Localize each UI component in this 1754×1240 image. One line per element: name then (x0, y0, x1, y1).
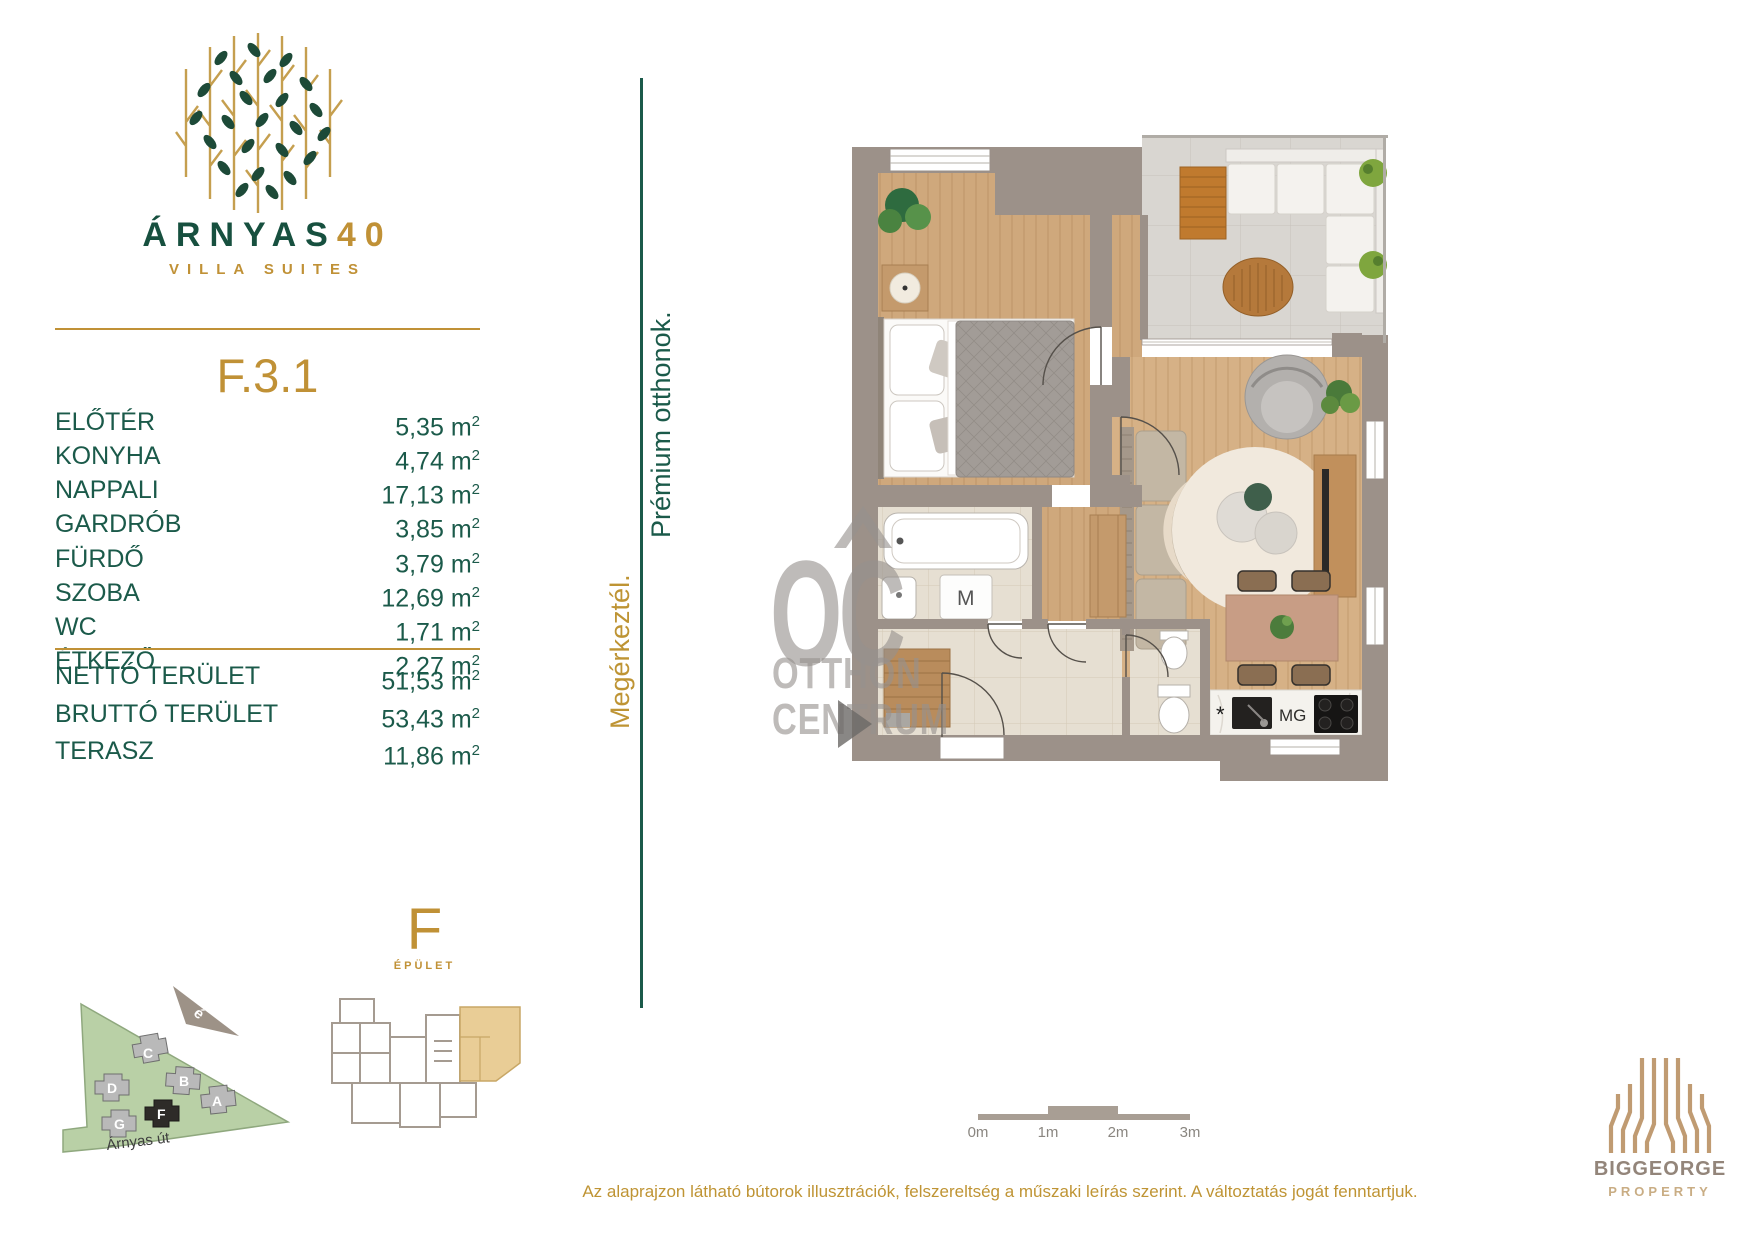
total-label: TERASZ (55, 735, 154, 773)
corridor-floor (1112, 215, 1142, 357)
unit-id: F.3.1 (55, 348, 480, 403)
building-label: C (143, 1045, 153, 1061)
area-unit-exp: 2 (472, 413, 480, 430)
area-unit: m (451, 516, 472, 544)
room-area-value: 5,35 (395, 413, 444, 441)
room-area-value: 3,79 (395, 550, 444, 578)
area-unit: m (451, 743, 472, 771)
total-label: NETTÓ TERÜLET (55, 660, 260, 698)
room-label: WC (55, 613, 97, 647)
area-unit-exp: 2 (472, 705, 480, 722)
footer-disclaimer: Az alaprajzon látható bútorok illusztrác… (500, 1182, 1500, 1202)
room-label: GARDRÓB (55, 510, 181, 544)
scale-bar (978, 1104, 1190, 1120)
area-unit-exp: 2 (472, 550, 480, 567)
table-row: SZOBA12,69 m2 (55, 579, 480, 613)
biggeorge-logo-icon (1590, 1046, 1730, 1158)
kitchen-oven-label: MG (1279, 706, 1306, 725)
bathtub (884, 513, 1028, 569)
table-row: NETTÓ TERÜLET51,53 m2 (55, 660, 480, 698)
scale-label: 3m (1175, 1124, 1205, 1141)
tree-logo-icon (158, 26, 358, 226)
room-area-value: 17,13 (381, 482, 444, 510)
building-label: A (212, 1093, 222, 1109)
room-label: SZOBA (55, 579, 140, 613)
divider-top (55, 328, 480, 330)
scale-labels: 0m 1m 2m 3m (978, 1124, 1190, 1144)
bed (878, 317, 1074, 479)
total-area-value: 53,43 (381, 705, 444, 733)
total-area: 53,43 m2 (381, 698, 480, 736)
site-plan: é C D B A G F Árnyas út (45, 982, 315, 1177)
area-unit-exp: 2 (472, 515, 480, 532)
area-unit-exp: 2 (472, 742, 480, 759)
brand-name-number: 40 (337, 216, 393, 254)
total-area-value: 11,86 (383, 743, 444, 771)
building-label: F (157, 1106, 166, 1122)
brochure-page: ÁRNYAS40 VILLA SUITES F.3.1 ELŐTÉR5,35 m… (0, 0, 1754, 1240)
table-row: ELŐTÉR5,35 m2 (55, 408, 480, 442)
room-area: 12,69 m2 (381, 579, 480, 613)
area-unit-exp: 2 (472, 481, 480, 498)
room-area-value: 3,85 (395, 516, 444, 544)
room-area: 17,13 m2 (381, 476, 480, 510)
washing-machine-label: M (957, 587, 975, 610)
building-label: G (114, 1116, 125, 1132)
room-label: FÜRDŐ (55, 545, 144, 579)
room-label: NAPPALI (55, 476, 159, 510)
area-unit: m (451, 584, 472, 612)
slogan-premium: Prémium otthonok. (646, 268, 677, 538)
nightstand (882, 265, 928, 311)
kitchen-hob (1314, 695, 1358, 733)
outdoor-round-table (1223, 258, 1293, 316)
area-unit-exp: 2 (472, 618, 480, 635)
total-area: 11,86 m2 (383, 735, 480, 773)
room-area-value: 12,69 (381, 584, 444, 612)
table-row: WC1,71 m2 (55, 613, 480, 647)
room-area: 3,85 m2 (395, 510, 480, 544)
divider-totals (55, 648, 480, 650)
table-row: FÜRDŐ3,79 m2 (55, 545, 480, 579)
outdoor-side-table (1180, 167, 1226, 239)
compass-icon: é (173, 986, 239, 1036)
terrace-parapet-right (1383, 135, 1386, 343)
brand-name-main: ÁRNYAS (142, 216, 336, 254)
room-area-value: 1,71 (395, 618, 444, 646)
room-area-value: 4,74 (395, 447, 444, 475)
terrace-parapet (1142, 135, 1388, 138)
kitchen-note-mark: * (1216, 702, 1225, 727)
room-area: 1,71 m2 (395, 613, 480, 647)
area-unit: m (451, 550, 472, 578)
scale-label: 1m (1033, 1124, 1063, 1141)
room-area: 3,79 m2 (395, 545, 480, 579)
area-unit: m (451, 413, 472, 441)
toilet (1158, 685, 1190, 733)
area-unit: m (451, 618, 472, 646)
scale-label: 2m (1103, 1124, 1133, 1141)
table-row: TERASZ11,86 m2 (55, 735, 480, 773)
room-area-table: ELŐTÉR5,35 m2 KONYHA4,74 m2 NAPPALI17,13… (55, 408, 480, 681)
key-plan-caption: ÉPÜLET (322, 960, 527, 972)
armchair (1245, 355, 1329, 439)
vertical-divider-line (640, 78, 643, 1008)
total-area-value: 51,53 (381, 667, 444, 695)
washing-machine: M (940, 575, 992, 619)
kitchen-counter: * MG (1210, 690, 1362, 735)
key-plan-building-letter: F (322, 896, 527, 963)
area-unit-exp: 2 (472, 667, 480, 684)
total-label: BRUTTÓ TERÜLET (55, 698, 278, 736)
building-label: D (107, 1080, 117, 1096)
table-row: BRUTTÓ TERÜLET53,43 m2 (55, 698, 480, 736)
area-unit: m (451, 667, 472, 695)
area-unit: m (451, 482, 472, 510)
building-label: B (179, 1073, 189, 1089)
room-area: 4,74 m2 (395, 442, 480, 476)
bidet (1160, 631, 1188, 669)
area-unit-exp: 2 (472, 447, 480, 464)
room-label: ELŐTÉR (55, 408, 155, 442)
scale-segment (1118, 1114, 1190, 1120)
scale-label: 0m (963, 1124, 993, 1141)
key-plan-highlighted-unit (460, 1007, 520, 1081)
totals-table: NETTÓ TERÜLET51,53 m2 BRUTTÓ TERÜLET53,4… (55, 660, 480, 773)
wardrobe-cabinet (1090, 515, 1126, 617)
room-label: KONYHA (55, 442, 161, 476)
play-icon (838, 700, 872, 748)
slogan-arrived: Megérkeztél. (605, 534, 636, 729)
publisher-name: BIGGEORGE (1570, 1158, 1750, 1181)
area-unit: m (451, 705, 472, 733)
table-row: GARDRÓB3,85 m2 (55, 510, 480, 544)
table-row: KONYHA4,74 m2 (55, 442, 480, 476)
brand-name: ÁRNYAS40 (55, 216, 480, 255)
room-area: 5,35 m2 (395, 408, 480, 442)
scale-segment (1048, 1106, 1118, 1120)
publisher-division: PROPERTY (1570, 1184, 1750, 1199)
key-plan-outline (322, 985, 527, 1135)
total-area: 51,53 m2 (381, 660, 480, 698)
table-row: NAPPALI17,13 m2 (55, 476, 480, 510)
brand-subtitle: VILLA SUITES (55, 261, 480, 278)
watermark-line1: OTTHON (772, 652, 922, 696)
area-unit-exp: 2 (472, 584, 480, 601)
scale-segment (978, 1114, 1048, 1120)
area-unit: m (451, 447, 472, 475)
